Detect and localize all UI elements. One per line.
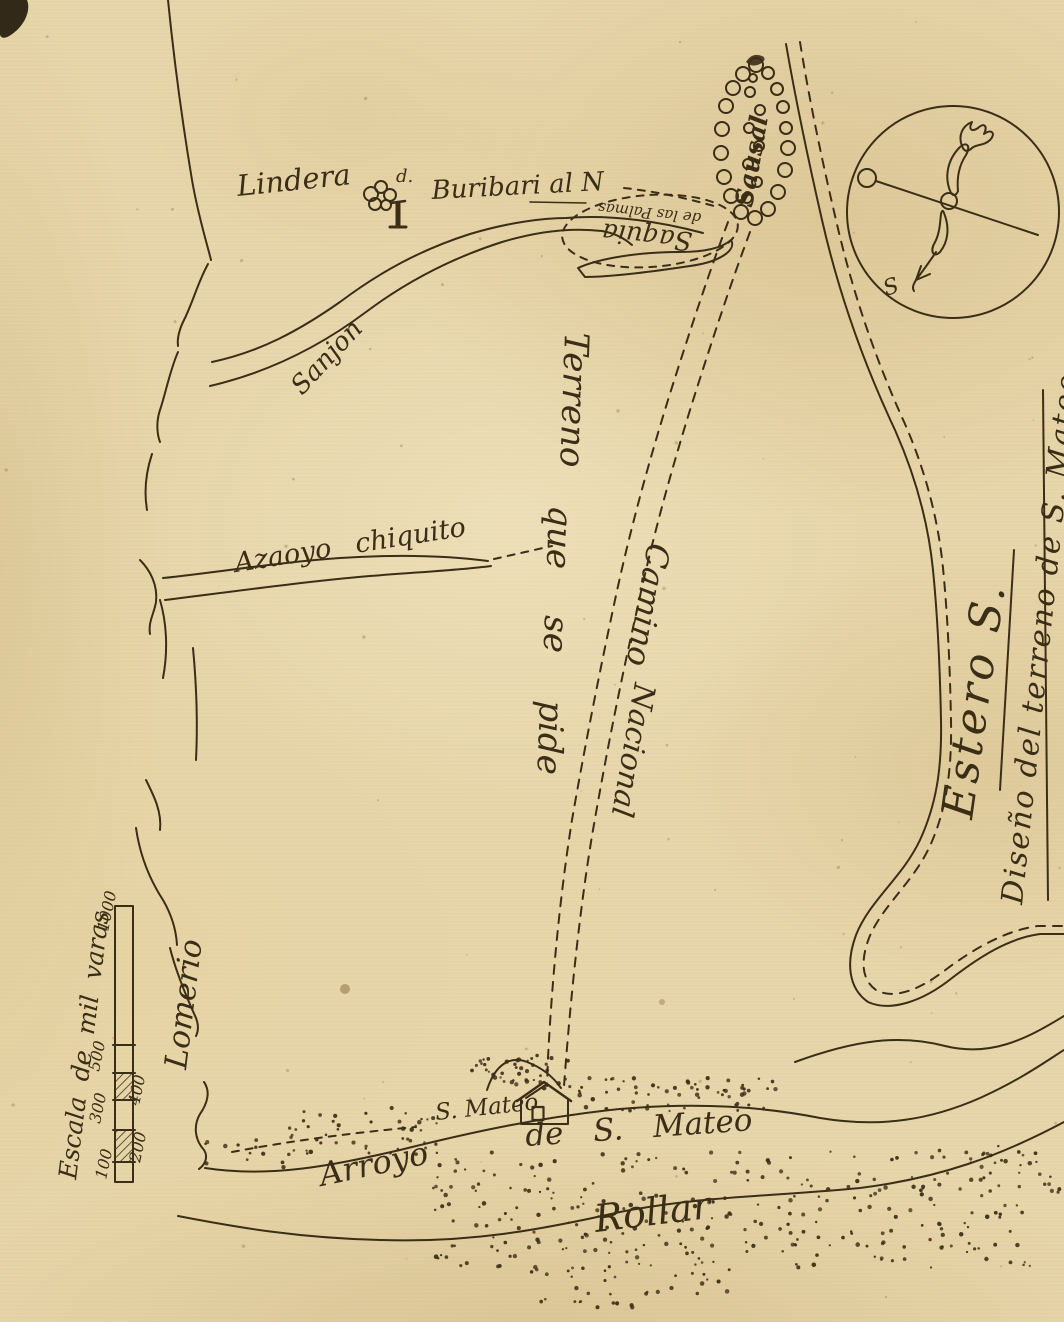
paper-spot bbox=[340, 984, 350, 994]
terreno-word-4: pide bbox=[528, 700, 571, 776]
terreno-label-group: Terreno que se pide bbox=[528, 332, 596, 776]
scale-bar: 100 300 500 1000 200 400 Escala de mil v… bbox=[53, 889, 150, 1182]
paper-fold-line bbox=[168, 0, 211, 260]
sanjon-label: Sanjon bbox=[285, 314, 369, 401]
north-fleur-icon bbox=[960, 122, 992, 151]
buribari-label: Buribari al N bbox=[430, 167, 606, 206]
camino-label: Camino bbox=[619, 541, 678, 670]
estero-course bbox=[786, 42, 1064, 1062]
estero-label: Estero S. bbox=[932, 578, 1016, 822]
tree-marker-label: d. bbox=[396, 166, 413, 187]
azaoyo-label: Azaoyo chiquito bbox=[229, 512, 468, 580]
arroyo-de-label: de S. Mateo bbox=[524, 1102, 754, 1154]
paper-stains bbox=[0, 0, 665, 1005]
terreno-word-2: que bbox=[538, 505, 580, 570]
saquia-label-group: Saquia de las Palmas bbox=[594, 199, 702, 257]
sausal-grove: Sausal bbox=[714, 55, 795, 225]
saquia-group: Saquia de las Palmas bbox=[560, 189, 741, 277]
nacional-label: Nacional bbox=[604, 680, 662, 820]
map-canvas: Lomerio Sanjon Lindera d. Buribari al N … bbox=[0, 0, 1064, 1322]
arroyo-river: S. Mateo Arroyo de S. Mateo Rollar bbox=[178, 1050, 1064, 1241]
diseno-map-drawing: Lomerio Sanjon Lindera d. Buribari al N … bbox=[0, 0, 1064, 1322]
compass-circle-icon bbox=[847, 106, 1059, 318]
arroyo-label: Arroyo bbox=[313, 1134, 432, 1195]
lower-sweep-line bbox=[795, 1016, 1064, 1062]
compass-west-ring-icon bbox=[858, 169, 876, 187]
paper-spot bbox=[659, 999, 665, 1005]
sausal-tip bbox=[746, 55, 765, 66]
rollar-label: Rollar bbox=[591, 1183, 716, 1241]
compass-rose: S bbox=[847, 106, 1059, 318]
boundary-tree-icon bbox=[364, 181, 406, 227]
sausal-label: Sausal bbox=[729, 113, 774, 209]
azaoyo-stream: Azaoyo chiquito bbox=[163, 512, 552, 600]
compass-north-needle-icon bbox=[947, 144, 968, 195]
south-arrowhead-icon bbox=[913, 266, 930, 291]
compass-south-needle-icon bbox=[932, 211, 947, 255]
lindero-label: Lindera bbox=[234, 157, 352, 203]
lomerio-label: Lomerio bbox=[158, 937, 210, 1072]
scale-tick-100: 100 bbox=[91, 1147, 116, 1181]
terreno-word-3: se bbox=[535, 615, 576, 654]
terreno-word-1: Terreno bbox=[551, 332, 596, 468]
compass-south-label: S bbox=[880, 273, 902, 301]
underline-stroke bbox=[530, 202, 586, 203]
ink-blot-corner bbox=[0, 0, 28, 38]
title-block: Estero S. Diseño del terreno de S. Mateo bbox=[932, 371, 1064, 907]
